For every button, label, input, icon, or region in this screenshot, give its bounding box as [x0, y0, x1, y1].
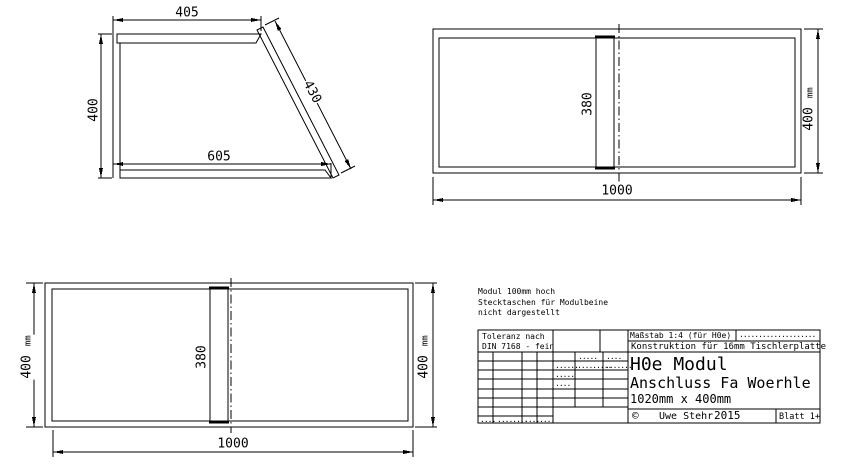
construction-label: Konstruktion für 16mm Tischlerplatte: [631, 342, 826, 352]
author-name: Uwe Stehr: [659, 411, 713, 422]
module-bottom-height-right-label: 400mm: [418, 334, 433, 379]
module-top-height-value: 400: [802, 107, 817, 130]
rev-dots-r1c3: ····: [606, 355, 621, 362]
trapezoid-top-width-label: 405: [174, 7, 199, 20]
module-top-width-label: 1000: [600, 185, 633, 198]
diagonal-board: [257, 27, 339, 178]
module-bottom-width-label: 1000: [216, 438, 249, 451]
drawing-subtitle: Anschluss Fa Woerhle: [630, 376, 811, 391]
rev-dots-r4c1: ····: [555, 382, 570, 389]
rev-dots-r2c3: ·······: [605, 364, 632, 371]
drawing-note: Modul 100mm hoch Stecktaschen für Modulb…: [478, 287, 608, 319]
trapezoid-bottom-width-label: 605: [206, 151, 231, 164]
scale-dots-placeholder: ····················: [739, 333, 815, 340]
top-board: [117, 34, 261, 43]
module-bottom-divider-label: 380: [196, 344, 209, 369]
note-line-3: nicht dargestellt: [478, 308, 608, 319]
module-bottom-height-left-value: 400: [20, 355, 35, 378]
rev-dots-b4: ····: [539, 418, 554, 425]
module-top-height-unit: mm: [806, 87, 816, 98]
module-size-label: 1020mm x 400mm: [630, 393, 731, 405]
copyright-symbol: ©: [632, 410, 639, 421]
rev-dots-b2: ········: [497, 418, 528, 425]
module-outer-frame: [45, 283, 413, 427]
rev-dots-r3c1: ·····: [555, 373, 574, 380]
bottom-board: [120, 170, 331, 178]
tolerance-line-1: Toleranz nach: [482, 332, 554, 342]
rev-dots-b3: ····: [524, 418, 539, 425]
module-top-height-label: 400mm: [803, 86, 818, 131]
module-bottom-height-left-label: 400mm: [21, 334, 36, 379]
module-top-view: [433, 24, 823, 205]
scale-label: Maßstab 1:4 (für H0e): [630, 331, 731, 341]
sheet-number: Blatt 1+: [779, 412, 820, 422]
tolerance-line-2: DIN 7168 - fein: [482, 342, 554, 352]
module-bottom-view: [26, 278, 437, 457]
drawing-title: H0e Modul: [630, 356, 728, 374]
module-bottom-height-right-value: 400: [417, 355, 432, 378]
module-bottom-height-right-unit: mm: [421, 335, 431, 346]
module-bottom-height-left-unit: mm: [24, 335, 34, 346]
trapezoid-left-height-label: 400: [88, 97, 101, 122]
note-line-1: Modul 100mm hoch: [478, 287, 608, 298]
rev-dots-b1: ····: [480, 418, 495, 425]
tolerance-note: Toleranz nach DIN 7168 - fein: [482, 332, 554, 352]
rev-dots-r1c2: ·····: [578, 355, 597, 362]
rev-dots-r2c1: ······: [555, 364, 578, 371]
module-outer-frame: [433, 29, 801, 173]
year-label: 2015: [714, 410, 741, 421]
divider-board: [210, 289, 228, 421]
divider-board: [596, 38, 614, 167]
module-inner-frame: [439, 38, 795, 167]
drawing-sheet: 405 400 605 430 380 1000 400mm 380 1000 …: [0, 0, 847, 470]
note-line-2: Stecktaschen für Modulbeine: [478, 298, 608, 309]
module-inner-frame: [52, 289, 408, 421]
module-top-divider-label: 380: [582, 91, 595, 116]
